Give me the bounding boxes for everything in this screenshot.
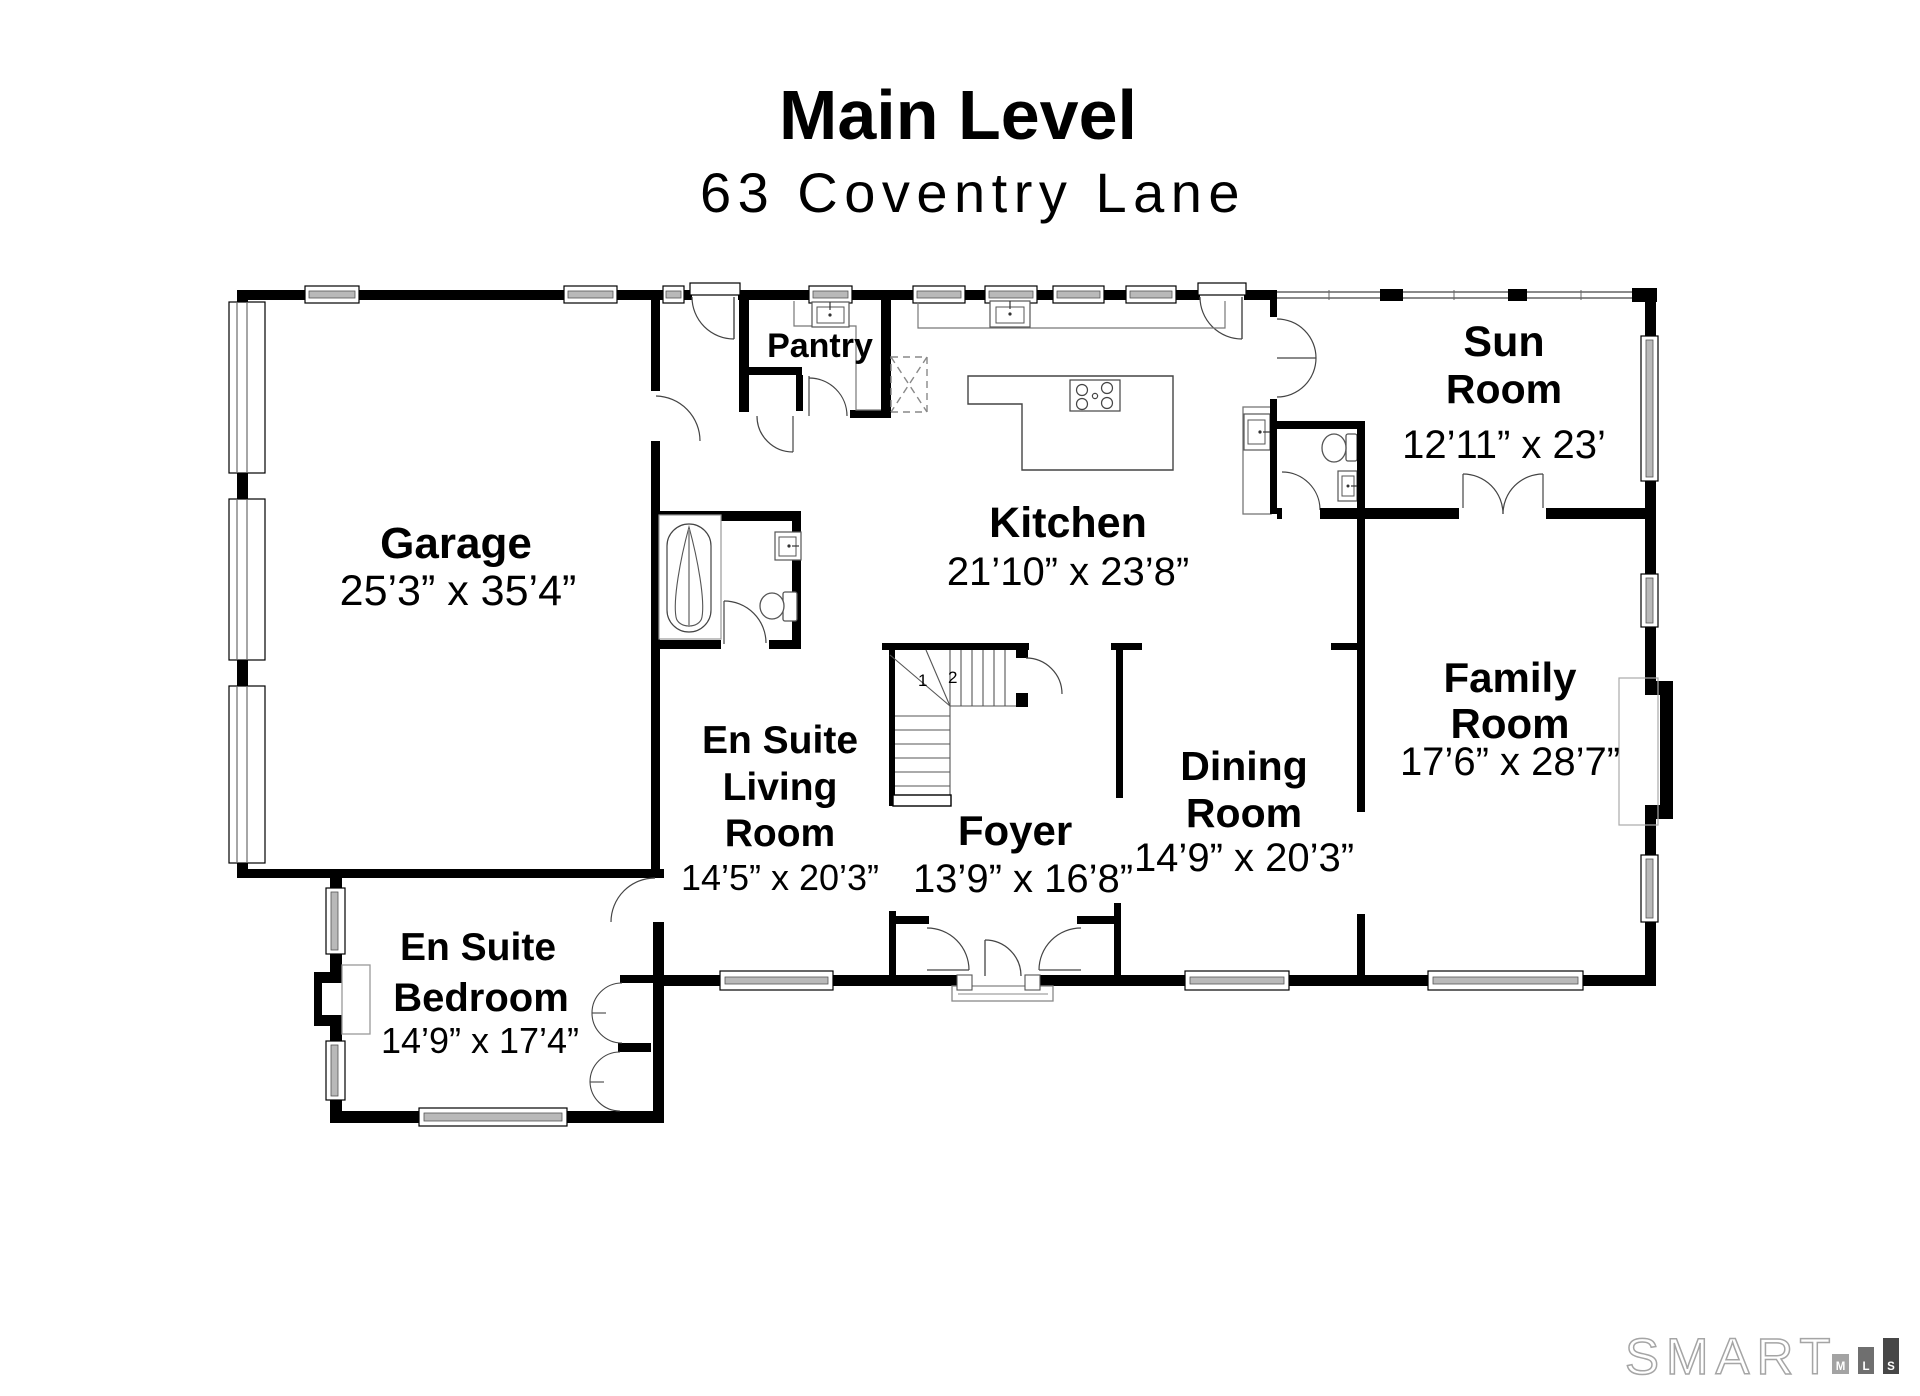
svg-text:Family: Family (1443, 654, 1577, 701)
svg-text:L: L (1862, 1361, 1869, 1373)
svg-text:12’11” x 23’: 12’11” x 23’ (1402, 423, 1606, 467)
svg-text:Room: Room (1186, 790, 1302, 836)
svg-text:21’10” x 23’8”: 21’10” x 23’8” (947, 550, 1189, 594)
svg-text:14’9” x 20’3”: 14’9” x 20’3” (1134, 836, 1354, 880)
svg-text:Sun: Sun (1463, 318, 1544, 366)
svg-text:M: M (1836, 1361, 1846, 1373)
svg-text:Foyer: Foyer (958, 807, 1072, 854)
svg-text:Room: Room (725, 812, 836, 855)
svg-text:2: 2 (948, 668, 957, 687)
svg-text:Pantry: Pantry (767, 327, 873, 365)
svg-text:Kitchen: Kitchen (989, 499, 1147, 547)
svg-text:Garage: Garage (380, 519, 532, 568)
svg-text:Room: Room (1446, 366, 1562, 412)
svg-text:Dining: Dining (1180, 743, 1308, 789)
svg-text:SMART: SMART (1625, 1328, 1838, 1385)
svg-text:Main Level: Main Level (779, 76, 1137, 154)
svg-text:14’9” x 17’4”: 14’9” x 17’4” (381, 1020, 579, 1061)
svg-text:17’6” x 28’7”: 17’6” x 28’7” (1400, 740, 1620, 784)
svg-text:63 Coventry Lane: 63 Coventry Lane (700, 161, 1246, 224)
svg-text:13’9” x 16’8”: 13’9” x 16’8” (913, 857, 1133, 901)
svg-text:En Suite: En Suite (702, 719, 858, 762)
svg-text:En Suite: En Suite (400, 926, 556, 969)
svg-text:Living: Living (723, 766, 838, 809)
svg-text:S: S (1887, 1361, 1895, 1373)
svg-text:Bedroom: Bedroom (393, 976, 569, 1020)
svg-text:25’3” x 35’4”: 25’3” x 35’4” (340, 567, 577, 615)
svg-text:1: 1 (918, 671, 927, 690)
svg-text:14’5” x 20’3”: 14’5” x 20’3” (681, 857, 879, 898)
